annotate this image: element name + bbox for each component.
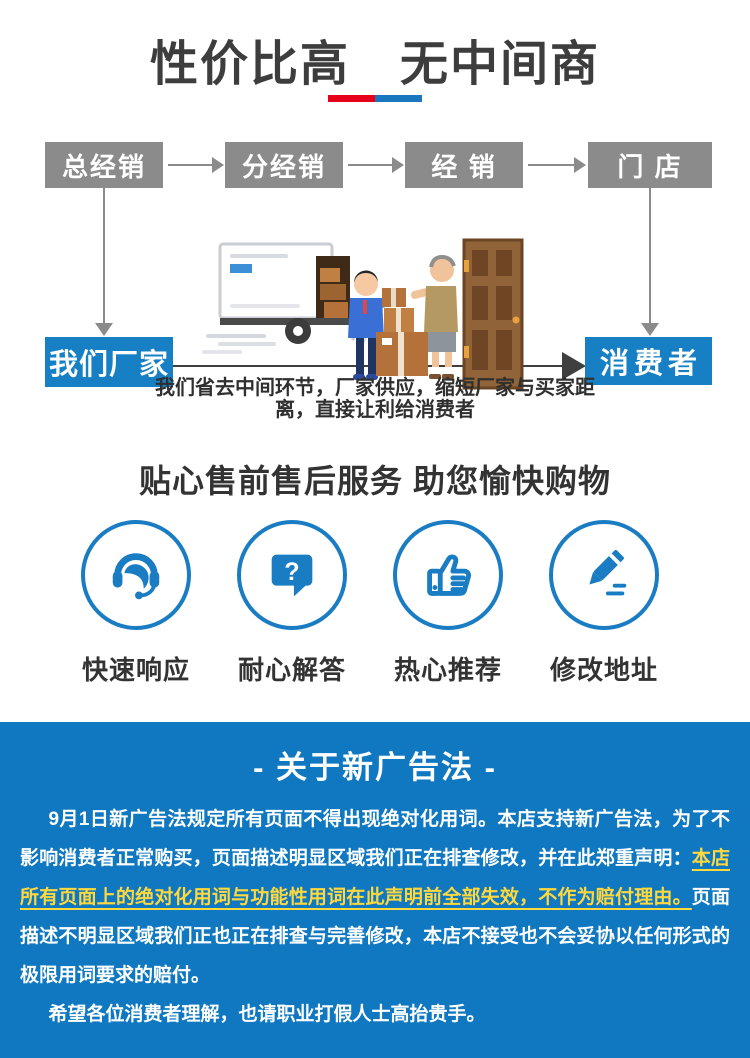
right-arrow-icon [528,164,574,166]
svg-text:?: ? [284,558,299,586]
service-circle-fast-response [81,520,191,630]
notice-paragraph-1: 9月1日新广告法规定所有页面不得出现绝对化用词。本店支持新广告法，为了不影响消费… [20,800,730,995]
notice-title: - 关于新广告法 - [0,722,750,788]
headset-icon [105,544,167,606]
service-label-fast-response: 快速响应 [56,650,216,687]
flow-box-general-distributor: 总经销 [45,142,163,188]
right-arrow-icon [168,164,212,166]
flow-caption-line1: 我们省去中间环节，厂家供应，缩短厂家与买家距 [55,377,695,399]
flow-box-sub-distributor: 分经销 [225,142,343,188]
flow-caption: 我们省去中间环节，厂家供应，缩短厂家与买家距 离，直接让利给消费者 [55,377,695,421]
question-bubble-icon: ? [261,544,323,606]
service-label-warm-recommendation: 热心推荐 [368,650,528,687]
pencil-icon [573,544,635,606]
service-circle-edit-address [549,520,659,630]
right-arrow-icon [562,352,586,380]
notice-body: 9月1日新广告法规定所有页面不得出现绝对化用词。本店支持新广告法，为了不影响消费… [20,800,730,1034]
flow-box-store: 门 店 [588,142,712,188]
notice-paragraph-2: 希望各位消费者理解，也请职业打假人士高抬贵手。 [20,995,730,1034]
services-title: 贴心售前售后服务 助您愉快购物 [0,456,750,502]
notice-text: 9月1日新广告法规定所有页面不得出现绝对化用词。本店支持新广告法，为了不影响消费… [20,809,730,869]
delivery-illustration [198,238,546,390]
service-label-patient-answers: 耐心解答 [212,650,372,687]
down-arrow-icon [641,323,659,336]
connector-line-right [649,188,651,323]
thumbs-up-icon [417,544,479,606]
promo-page: 性价比高 无中间商 总经销 分经销 经 销 门 店 [0,0,750,1058]
title-underline [328,95,422,102]
flow-caption-line2: 离，直接让利给消费者 [55,399,695,421]
service-circle-patient-answers: ? [237,520,347,630]
service-label-edit-address: 修改地址 [524,650,684,687]
flow-box-dealer: 经 销 [405,142,523,188]
page-title: 性价比高 无中间商 [0,24,750,94]
notice-section: - 关于新广告法 - 9月1日新广告法规定所有页面不得出现绝对化用词。本店支持新… [0,722,750,1058]
right-arrow-icon [348,164,392,166]
underline-blue-segment [375,95,422,102]
down-arrow-icon [95,323,113,336]
underline-red-segment [328,95,375,102]
connector-line-left [103,188,105,323]
service-circle-warm-recommendation [393,520,503,630]
